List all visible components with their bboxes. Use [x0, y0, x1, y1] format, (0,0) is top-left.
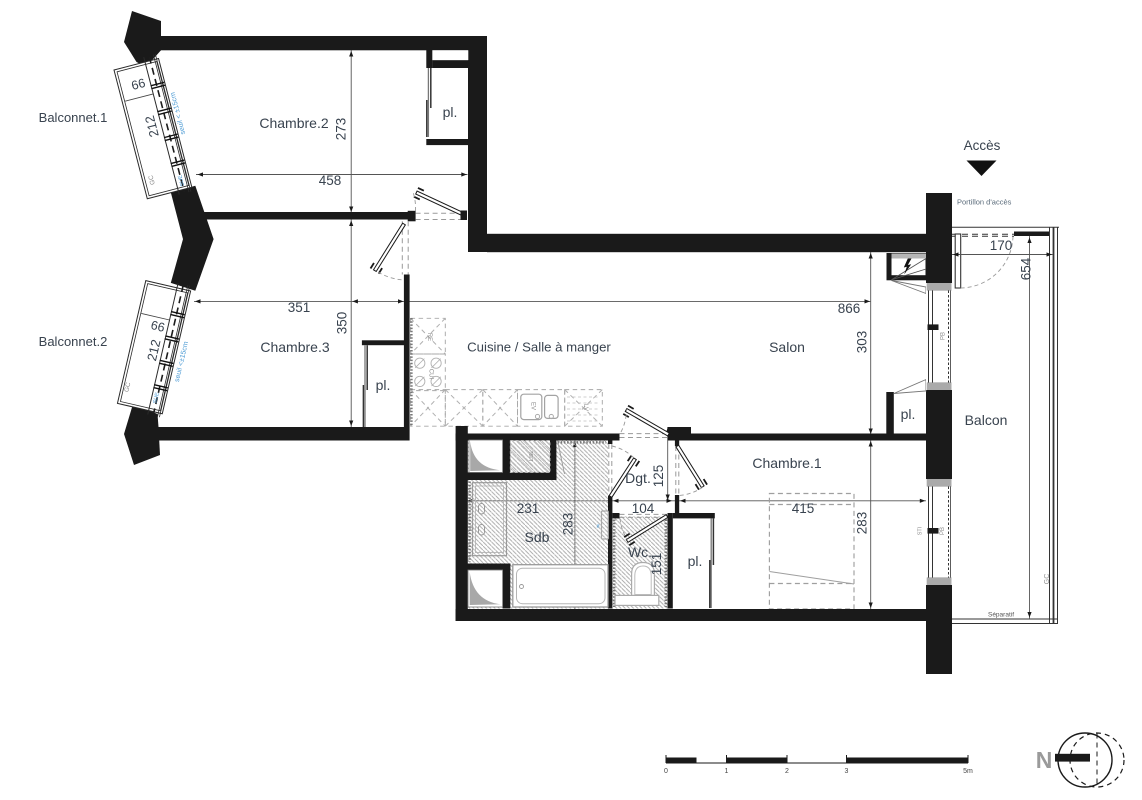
svg-text:Chambre.3: Chambre.3	[260, 339, 329, 355]
svg-text:151: 151	[649, 553, 664, 576]
svg-text:231: 231	[517, 501, 540, 516]
svg-text:0: 0	[664, 768, 668, 775]
svg-text:pl.: pl.	[901, 406, 916, 422]
svg-text:866: 866	[838, 301, 861, 316]
svg-text:Chambre.2: Chambre.2	[259, 115, 328, 131]
svg-text:3: 3	[845, 768, 849, 775]
svg-text:pl.: pl.	[376, 377, 391, 393]
svg-text:104: 104	[632, 501, 655, 516]
svg-text:PB: PB	[940, 527, 946, 535]
svg-text:pl.: pl.	[688, 553, 703, 569]
svg-text:N: N	[1036, 747, 1053, 773]
svg-text:LV: LV	[582, 404, 588, 411]
svg-text:RE: RE	[426, 333, 432, 341]
svg-text:Sdb: Sdb	[525, 529, 550, 545]
svg-text:Chambre.1: Chambre.1	[752, 455, 821, 471]
svg-text:pl.: pl.	[443, 104, 458, 120]
svg-text:Cuisine / Salle à manger: Cuisine / Salle à manger	[467, 340, 611, 355]
svg-text:CUI: CUI	[428, 369, 434, 380]
svg-text:STI: STI	[918, 526, 924, 535]
svg-text:125: 125	[651, 465, 666, 488]
svg-text:Portillon d'accès: Portillon d'accès	[957, 198, 1012, 207]
svg-text:5m: 5m	[963, 768, 973, 775]
svg-text:Balconnet.2: Balconnet.2	[39, 334, 108, 349]
svg-text:170: 170	[990, 238, 1013, 253]
svg-text:Balcon: Balcon	[965, 412, 1008, 428]
svg-text:273: 273	[334, 118, 349, 141]
svg-text:415: 415	[792, 501, 815, 516]
svg-text:654: 654	[1019, 257, 1034, 280]
svg-text:458: 458	[319, 173, 342, 188]
svg-text:303: 303	[855, 331, 870, 354]
svg-text:Séparatif: Séparatif	[988, 612, 1014, 619]
svg-text:283: 283	[561, 513, 576, 536]
svg-text:2: 2	[785, 768, 789, 775]
svg-text:L/SL: L/SL	[529, 451, 535, 462]
svg-text:Accès: Accès	[964, 138, 1001, 153]
svg-text:Balconnet.1: Balconnet.1	[39, 110, 108, 125]
svg-text:350: 350	[335, 312, 350, 335]
svg-text:EV: EV	[530, 402, 536, 410]
svg-text:ø: ø	[596, 524, 599, 530]
svg-text:351: 351	[288, 300, 311, 315]
svg-text:Dgt.: Dgt.	[625, 470, 651, 486]
svg-text:GC: GC	[1044, 574, 1051, 585]
svg-text:PB: PB	[941, 332, 947, 340]
svg-text:283: 283	[855, 512, 870, 535]
svg-text:1: 1	[725, 768, 729, 775]
svg-text:Salon: Salon	[769, 339, 805, 355]
